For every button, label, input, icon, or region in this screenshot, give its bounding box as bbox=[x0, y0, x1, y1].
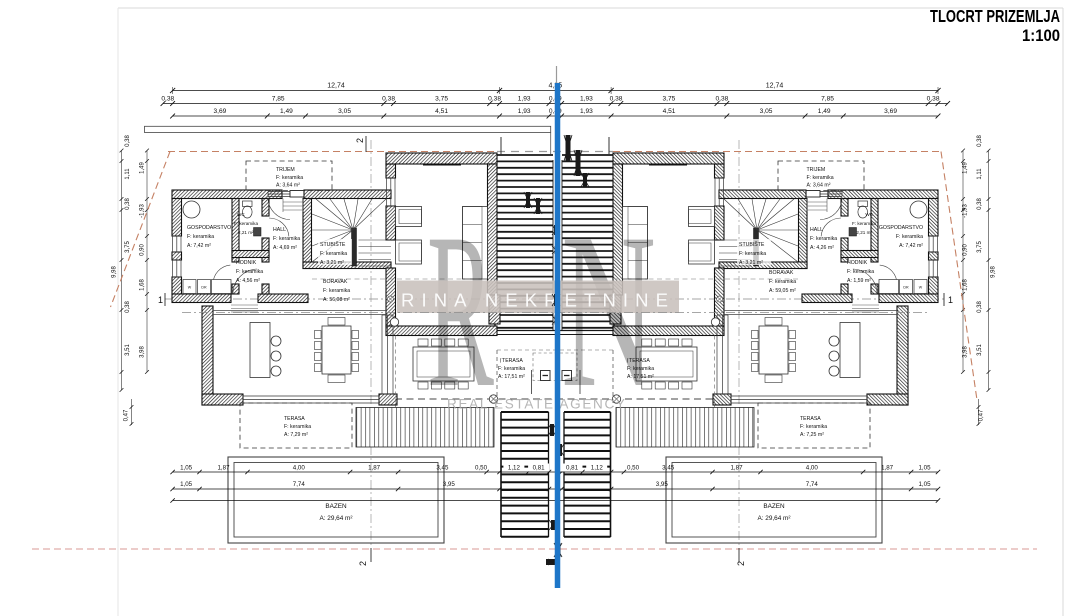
svg-text:1,87: 1,87 bbox=[881, 465, 894, 472]
svg-text:3,69: 3,69 bbox=[884, 108, 897, 115]
svg-text:BORAVAK: BORAVAK bbox=[769, 270, 794, 276]
svg-text:A: 1,59 m²: A: 1,59 m² bbox=[847, 278, 871, 284]
svg-text:F: keramika: F: keramika bbox=[739, 251, 766, 257]
svg-text:A: 3,64 m²: A: 3,64 m² bbox=[276, 183, 300, 189]
svg-text:-1,93: -1,93 bbox=[963, 204, 969, 218]
svg-text:4,00: 4,00 bbox=[806, 465, 819, 472]
svg-text:F: keramika: F: keramika bbox=[769, 279, 796, 285]
svg-text:0,38: 0,38 bbox=[382, 96, 395, 103]
svg-text:7,74: 7,74 bbox=[293, 481, 306, 488]
svg-text:0,90: 0,90 bbox=[963, 244, 969, 256]
svg-text:3,95: 3,95 bbox=[443, 481, 456, 488]
svg-text:3,75: 3,75 bbox=[435, 96, 448, 103]
svg-text:W: W bbox=[188, 286, 192, 290]
svg-text:1,87: 1,87 bbox=[217, 465, 230, 472]
svg-text:TRIJEM: TRIJEM bbox=[276, 167, 295, 173]
svg-text:BORAVAK: BORAVAK bbox=[323, 279, 348, 285]
svg-text:4,51: 4,51 bbox=[663, 108, 676, 115]
svg-text:F: keramika: F: keramika bbox=[320, 251, 347, 257]
svg-text:7,74: 7,74 bbox=[806, 481, 819, 488]
svg-text:0,47: 0,47 bbox=[124, 409, 130, 421]
svg-text:4,51: 4,51 bbox=[435, 108, 448, 115]
svg-text:F: keramika: F: keramika bbox=[847, 269, 874, 275]
svg-text:3,69: 3,69 bbox=[213, 108, 226, 115]
svg-text:GOSPODARSTVO: GOSPODARSTVO bbox=[879, 225, 923, 231]
svg-text:A: 4,69 m²: A: 4,69 m² bbox=[273, 245, 297, 251]
svg-text:0,81: 0,81 bbox=[566, 465, 579, 472]
svg-text:2: 2 bbox=[736, 561, 746, 566]
svg-text:A: 7,25 m²: A: 7,25 m² bbox=[800, 432, 824, 438]
svg-text:A: 17,51 m²: A: 17,51 m² bbox=[498, 374, 525, 380]
svg-text:0,38: 0,38 bbox=[977, 198, 983, 210]
svg-text:2: 2 bbox=[358, 561, 368, 566]
svg-text:WC: WC bbox=[865, 212, 873, 217]
svg-text:1,11: 1,11 bbox=[977, 168, 983, 180]
svg-text:REAL ESTATE AGENCY: REAL ESTATE AGENCY bbox=[447, 397, 627, 412]
svg-text:A: 29,64 m²: A: 29,64 m² bbox=[319, 515, 352, 522]
svg-text:7,85: 7,85 bbox=[821, 96, 834, 103]
svg-text:3,51: 3,51 bbox=[125, 344, 131, 356]
svg-text:2,21 m²: 2,21 m² bbox=[238, 230, 254, 235]
svg-text:1: 1 bbox=[948, 295, 953, 305]
svg-text:F: keramika: F: keramika bbox=[810, 236, 837, 242]
svg-text:3,51: 3,51 bbox=[977, 344, 983, 356]
svg-text:RINA NEKRETNINE: RINA NEKRETNINE bbox=[401, 290, 675, 311]
svg-text:1,12: 1,12 bbox=[591, 465, 604, 472]
svg-text:A: 56,08 m²: A: 56,08 m² bbox=[323, 297, 350, 303]
svg-text:12,74: 12,74 bbox=[327, 83, 345, 90]
svg-text:0,38: 0,38 bbox=[610, 96, 623, 103]
svg-text:1,05: 1,05 bbox=[180, 481, 193, 488]
svg-text:1,49: 1,49 bbox=[963, 162, 969, 174]
svg-text:0,38: 0,38 bbox=[927, 96, 940, 103]
svg-text:1,05: 1,05 bbox=[180, 465, 193, 472]
svg-text:3,75: 3,75 bbox=[662, 96, 675, 103]
svg-text:A: 59,05 m²: A: 59,05 m² bbox=[769, 288, 796, 294]
svg-text:W: W bbox=[919, 286, 923, 290]
svg-text:GOSPODARSTVO: GOSPODARSTVO bbox=[187, 225, 231, 231]
svg-text:2: 2 bbox=[355, 138, 365, 143]
svg-text:A: 3,21 m²: A: 3,21 m² bbox=[320, 260, 344, 266]
svg-text:3,75: 3,75 bbox=[125, 241, 131, 253]
svg-text:A: 4,26 m²: A: 4,26 m² bbox=[810, 245, 834, 251]
svg-text:STUBIŠTE: STUBIŠTE bbox=[320, 241, 346, 248]
svg-text:1,87: 1,87 bbox=[730, 465, 743, 472]
svg-text:0,38: 0,38 bbox=[125, 301, 131, 313]
svg-text:HODNIK: HODNIK bbox=[847, 260, 868, 266]
svg-text:3,05: 3,05 bbox=[760, 108, 773, 115]
svg-text:1,49: 1,49 bbox=[280, 108, 293, 115]
svg-text:WC: WC bbox=[237, 212, 245, 217]
svg-text:A: 7,42 m²: A: 7,42 m² bbox=[187, 243, 211, 249]
svg-text:1,93: 1,93 bbox=[580, 108, 593, 115]
svg-text:DR: DR bbox=[903, 286, 909, 290]
svg-text:TERASA: TERASA bbox=[800, 416, 821, 422]
svg-text:0,38: 0,38 bbox=[715, 96, 728, 103]
svg-text:3,75: 3,75 bbox=[977, 241, 983, 253]
svg-text:0,38: 0,38 bbox=[161, 96, 174, 103]
svg-text:3,05: 3,05 bbox=[338, 108, 351, 115]
svg-text:0,38: 0,38 bbox=[977, 301, 983, 313]
svg-text:1:100: 1:100 bbox=[1022, 26, 1060, 45]
svg-text:0,38: 0,38 bbox=[125, 198, 131, 210]
svg-text:0,90: 0,90 bbox=[140, 244, 146, 256]
svg-text:-1,93: -1,93 bbox=[140, 204, 146, 218]
svg-text:HALL: HALL bbox=[273, 227, 286, 233]
svg-text:F: keramika: F: keramika bbox=[498, 366, 525, 372]
svg-text:1,05: 1,05 bbox=[918, 465, 931, 472]
svg-text:1,11: 1,11 bbox=[125, 168, 131, 180]
svg-text:F: keramika: F: keramika bbox=[807, 175, 834, 181]
svg-text:9,98: 9,98 bbox=[991, 266, 997, 278]
svg-text:A: 3,64 m²: A: 3,64 m² bbox=[807, 183, 831, 189]
svg-text:1,49: 1,49 bbox=[140, 162, 146, 174]
svg-text:4,00: 4,00 bbox=[293, 465, 306, 472]
svg-text:3,45: 3,45 bbox=[662, 465, 675, 472]
svg-text:HALL: HALL bbox=[810, 227, 823, 233]
svg-text:0,38: 0,38 bbox=[125, 135, 131, 147]
svg-text:⌈TERASA: ⌈TERASA bbox=[500, 358, 523, 364]
svg-text:TERASA: TERASA bbox=[284, 416, 305, 422]
svg-text:1,93: 1,93 bbox=[580, 96, 593, 103]
svg-text:F: keramika: F: keramika bbox=[896, 234, 923, 240]
svg-text:STUBIŠTE: STUBIŠTE bbox=[739, 241, 765, 248]
svg-text:1,93: 1,93 bbox=[518, 96, 531, 103]
svg-text:1: 1 bbox=[158, 295, 163, 305]
svg-text:HODNIK: HODNIK bbox=[236, 260, 257, 266]
svg-text:BAZEN: BAZEN bbox=[763, 503, 785, 510]
svg-text:A: 4,56 m²: A: 4,56 m² bbox=[236, 278, 260, 284]
svg-text:0,50: 0,50 bbox=[475, 465, 488, 472]
svg-text:F: keramika: F: keramika bbox=[284, 424, 311, 430]
svg-text:F: keramika: F: keramika bbox=[852, 221, 876, 226]
svg-text:3,98: 3,98 bbox=[963, 346, 969, 358]
svg-text:DR: DR bbox=[201, 286, 207, 290]
svg-text:TRIJEM: TRIJEM bbox=[807, 167, 826, 173]
svg-text:0,81: 0,81 bbox=[533, 465, 546, 472]
svg-text:F: keramika: F: keramika bbox=[273, 236, 300, 242]
svg-text:1,12: 1,12 bbox=[508, 465, 521, 472]
svg-text:F: keramika: F: keramika bbox=[234, 221, 258, 226]
svg-text:7,85: 7,85 bbox=[272, 96, 285, 103]
svg-text:0,38: 0,38 bbox=[977, 135, 983, 147]
svg-text:A: 7,42 m²: A: 7,42 m² bbox=[899, 243, 923, 249]
svg-text:0,47: 0,47 bbox=[979, 409, 985, 421]
svg-text:1,93: 1,93 bbox=[518, 108, 531, 115]
svg-text:1,49: 1,49 bbox=[818, 108, 831, 115]
svg-text:2,21 m²: 2,21 m² bbox=[856, 230, 872, 235]
svg-text:F: keramika: F: keramika bbox=[323, 288, 350, 294]
svg-text:F: keramika: F: keramika bbox=[187, 234, 214, 240]
svg-text:3,98: 3,98 bbox=[140, 346, 146, 358]
svg-text:1,68: 1,68 bbox=[140, 279, 146, 291]
svg-text:1,87: 1,87 bbox=[368, 465, 381, 472]
svg-text:3,95: 3,95 bbox=[656, 481, 669, 488]
svg-text:A: 7,29 m²: A: 7,29 m² bbox=[284, 432, 308, 438]
svg-text:BAZEN: BAZEN bbox=[325, 503, 347, 510]
svg-text:F: keramika: F: keramika bbox=[236, 269, 263, 275]
svg-text:1,68: 1,68 bbox=[963, 279, 969, 291]
svg-text:0,38: 0,38 bbox=[488, 96, 501, 103]
svg-text:1,05: 1,05 bbox=[918, 481, 931, 488]
svg-text:A: 29,64 m²: A: 29,64 m² bbox=[757, 515, 790, 522]
svg-text:A: 3,21 m²: A: 3,21 m² bbox=[739, 260, 763, 266]
svg-text:F: keramika: F: keramika bbox=[276, 175, 303, 181]
svg-text:3,45: 3,45 bbox=[436, 465, 449, 472]
svg-text:12,74: 12,74 bbox=[766, 83, 784, 90]
svg-text:TLOCRT PRIZEMLJA: TLOCRT PRIZEMLJA bbox=[930, 6, 1060, 26]
svg-text:F: keramika: F: keramika bbox=[800, 424, 827, 430]
svg-text:0,50: 0,50 bbox=[627, 465, 640, 472]
svg-text:9,98: 9,98 bbox=[112, 266, 118, 278]
